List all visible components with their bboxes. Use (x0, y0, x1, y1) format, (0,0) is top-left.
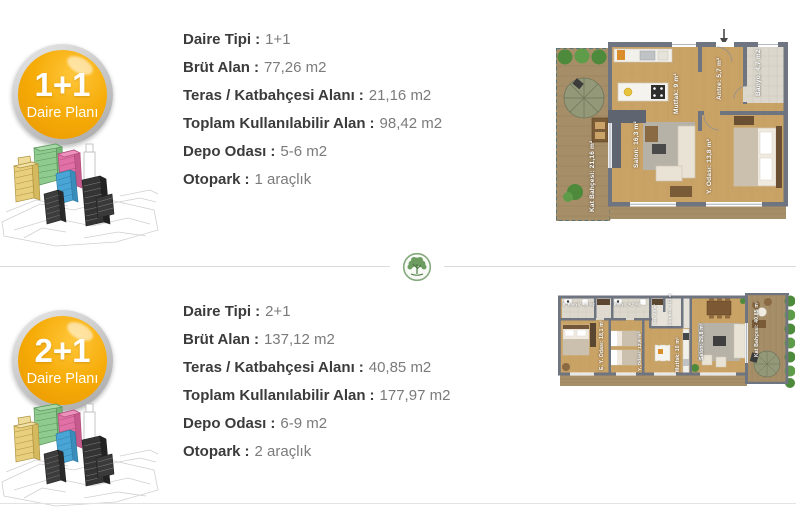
spec-label: Depo Odası (183, 143, 266, 160)
room-label-e-y-odasi: E. Y. Odası: 18,1 m² (599, 320, 605, 370)
spec-separator: : (245, 443, 250, 460)
spec-value: 40,85 m2 (369, 359, 432, 376)
room-label-mutfak: Mutfak: 9 m² (673, 73, 680, 114)
spec-value: 77,26 m2 (264, 59, 327, 76)
spec-label: Toplam Kullanılabilir Alan (183, 387, 366, 404)
room-label-ves: Ves: 2,5 m² (653, 303, 657, 324)
divider-line-right (444, 266, 796, 267)
floorplan-2-1-image: E. Banyo: 4,8 m2 Banyo: 4,2 m2 E. Y. Oda… (556, 293, 795, 393)
spec-separator: : (255, 31, 260, 48)
spec-separator: : (270, 415, 275, 432)
apartment-plans-page: 1+1 Daire Planı Daire Tipi:1+1 Brüt Alan… (0, 0, 796, 506)
spec-value: 2 araçlık (255, 443, 312, 460)
room-label-mutfak: Mutfak: 10 m² (675, 337, 681, 372)
spec-toplam-alan: Toplam Kullanılabilir Alan:98,42 m2 (183, 110, 543, 138)
spec-label: Teras / Katbahçesi Alanı (183, 87, 355, 104)
spec-otopark: Otopark:2 araçlık (183, 438, 543, 466)
spec-brut-alan: Brüt Alan:137,12 m2 (183, 326, 543, 354)
spec-label: Daire Tipi (183, 31, 251, 48)
tree-logo-icon (402, 252, 432, 282)
room-label-banyo: Banyo: 4,7 m2 (755, 49, 762, 96)
spec-brut-alan: Brüt Alan:77,26 m2 (183, 54, 543, 82)
spec-otopark: Otopark:1 araçlık (183, 166, 543, 194)
spec-value: 6-9 m2 (280, 415, 327, 432)
room-label-banyo: Banyo: 4,2 m2 (614, 303, 641, 307)
spec-label: Brüt Alan (183, 59, 250, 76)
badge-face: 1+1 Daire Planı (18, 50, 107, 139)
spec-depo-odasi: Depo Odası:6-9 m2 (183, 410, 543, 438)
spec-list-2-1: Daire Tipi:2+1 Brüt Alan:137,12 m2 Teras… (183, 298, 543, 466)
spec-value: 177,97 m2 (380, 387, 451, 404)
site-plan-illustration (0, 138, 160, 250)
spec-value: 98,42 m2 (380, 115, 443, 132)
spec-daire-tipi: Daire Tipi:2+1 (183, 298, 543, 326)
site-plan-illustration (0, 398, 160, 510)
spec-label: Depo Odası (183, 415, 266, 432)
spec-separator: : (245, 171, 250, 188)
room-label-kat-bahcesi: Kat Bahçesi: 40,85 m² (754, 301, 760, 357)
floorplan-1-1-image: Kat Bahçesi: 21,16 m² Mutfak: 9 m² Salon… (548, 26, 790, 228)
spec-separator: : (370, 115, 375, 132)
room-label-salon: Salon: 16,3 m² (633, 120, 640, 168)
spec-value: 5-6 m2 (280, 143, 327, 160)
spec-value: 21,16 m2 (369, 87, 432, 104)
spec-label: Toplam Kullanılabilir Alan (183, 115, 366, 132)
badge-face: 2+1 Daire Planı (18, 316, 107, 405)
spec-depo-odasi: Depo Odası:5-6 m2 (183, 138, 543, 166)
room-label-y-odasi: Y. Odası: 13,8 m² (706, 138, 713, 194)
badge-subtitle: Daire Planı (27, 371, 99, 387)
badge-plan-1-1[interactable]: 1+1 Daire Planı (12, 44, 113, 145)
room-label-giris-holu: Giriş Holü: 11,3 m² (668, 293, 672, 326)
spec-teras-alani: Teras / Katbahçesi Alanı:21,16 m2 (183, 82, 543, 110)
spec-value: 137,12 m2 (264, 331, 335, 348)
spec-separator: : (255, 303, 260, 320)
spec-label: Otopark (183, 443, 241, 460)
spec-label: Brüt Alan (183, 331, 250, 348)
spec-teras-alani: Teras / Katbahçesi Alanı:40,85 m2 (183, 354, 543, 382)
spec-separator: : (359, 87, 364, 104)
spec-daire-tipi: Daire Tipi:1+1 (183, 26, 543, 54)
divider-line-left (0, 266, 390, 267)
badge-plan-2-1[interactable]: 2+1 Daire Planı (12, 310, 113, 411)
spec-list-1-1: Daire Tipi:1+1 Brüt Alan:77,26 m2 Teras … (183, 26, 543, 194)
spec-separator: : (359, 359, 364, 376)
room-label-y-odasi: Y. Odası: 12,6 m² (637, 332, 642, 371)
spec-value: 1 araçlık (255, 171, 312, 188)
spec-separator: : (370, 387, 375, 404)
bottom-divider-line (0, 503, 796, 504)
spec-separator: : (254, 331, 259, 348)
spec-label: Teras / Katbahçesi Alanı (183, 359, 355, 376)
room-label-e-banyo: E. Banyo: 4,8 m2 (563, 303, 595, 307)
room-label-antre: Antre: 5,7 m² (716, 57, 723, 100)
spec-toplam-alan: Toplam Kullanılabilir Alan:177,97 m2 (183, 382, 543, 410)
spec-label: Otopark (183, 171, 241, 188)
spec-separator: : (270, 143, 275, 160)
spec-value: 1+1 (265, 31, 290, 48)
spec-label: Daire Tipi (183, 303, 251, 320)
spec-separator: : (254, 59, 259, 76)
room-label-salon: Salon: 29,8 m² (699, 323, 705, 360)
badge-subtitle: Daire Planı (27, 105, 99, 121)
spec-value: 2+1 (265, 303, 290, 320)
room-label-kat-bahcesi: Kat Bahçesi: 21,16 m² (589, 140, 596, 212)
